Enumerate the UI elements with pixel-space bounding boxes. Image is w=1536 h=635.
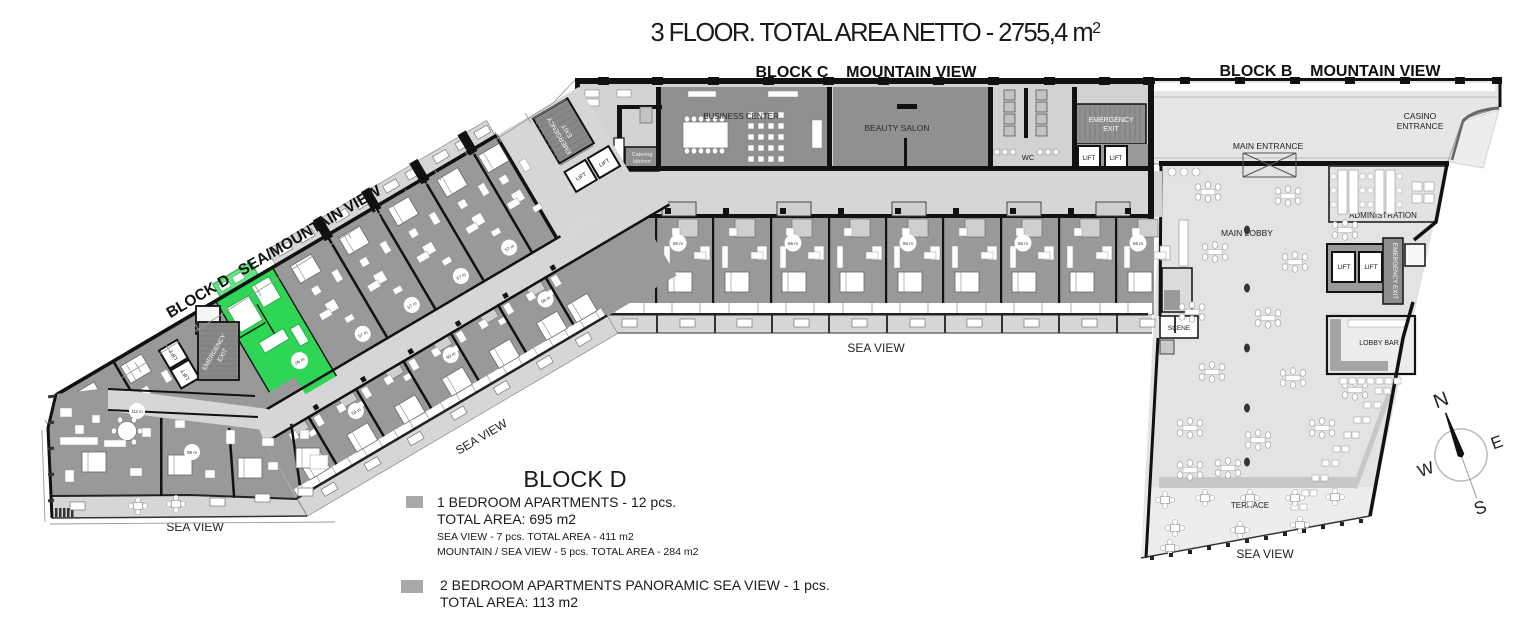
svg-text:LIFT: LIFT <box>1337 264 1350 271</box>
svg-text:66 m: 66 m <box>1018 241 1028 246</box>
svg-text:LIFT: LIFT <box>1364 264 1377 271</box>
svg-text:3 FLOOR. TOTAL AREA NETTO - 27: 3 FLOOR. TOTAL AREA NETTO - 2755,4 m2 <box>651 19 1102 47</box>
svg-text:66 m: 66 m <box>673 241 683 246</box>
svg-text:98 m: 98 m <box>187 450 197 455</box>
svg-text:BUSINESS CENTER: BUSINESS CENTER <box>703 112 779 121</box>
svg-text:EXIT: EXIT <box>1103 126 1119 133</box>
svg-text:SEA VIEW: SEA VIEW <box>166 520 224 534</box>
svg-text:SEA VIEW: SEA VIEW <box>847 341 905 355</box>
svg-text:WC: WC <box>1022 153 1035 162</box>
svg-text:MAIN ENTRANCE: MAIN ENTRANCE <box>1233 141 1304 151</box>
svg-text:Catering: Catering <box>632 152 653 158</box>
svg-text:ENTRANCE: ENTRANCE <box>1397 121 1444 131</box>
svg-text:SEA VIEW: SEA VIEW <box>1236 547 1294 561</box>
svg-text:LOBBY BAR: LOBBY BAR <box>1359 340 1399 347</box>
svg-text:1 BEDROOM APARTMENTS - 12 pcs.: 1 BEDROOM APARTMENTS - 12 pcs. <box>437 494 676 510</box>
svg-text:BEAUTY SALON: BEAUTY SALON <box>864 123 929 133</box>
svg-text:LIFT: LIFT <box>1083 156 1096 162</box>
svg-text:EMERGENCY EXIT: EMERGENCY EXIT <box>1391 243 1398 299</box>
svg-text:SCENE: SCENE <box>1168 325 1191 332</box>
svg-text:MOUNTAIN / SEA VIEW - 5 pcs. T: MOUNTAIN / SEA VIEW - 5 pcs. TOTAL AREA … <box>437 546 699 558</box>
svg-text:TOTAL AREA: 113 m2: TOTAL AREA: 113 m2 <box>440 594 578 610</box>
svg-text:kitchen: kitchen <box>633 159 650 165</box>
svg-text:66 m: 66 m <box>903 241 913 246</box>
svg-text:66 m: 66 m <box>1133 241 1143 246</box>
svg-text:112 m: 112 m <box>131 409 143 414</box>
svg-text:SEA VIEW - 7 pcs. TOTAL AREA -: SEA VIEW - 7 pcs. TOTAL AREA - 411 m2 <box>437 531 634 543</box>
svg-text:CASINO: CASINO <box>1404 111 1437 121</box>
svg-text:EMERGENCY: EMERGENCY <box>1088 117 1133 124</box>
svg-text:LIFT: LIFT <box>1110 156 1123 162</box>
svg-text:TOTAL AREA: 695 m2: TOTAL AREA: 695 m2 <box>437 511 576 527</box>
svg-text:2 BEDROOM APARTMENTS PANORAMIC: 2 BEDROOM APARTMENTS PANORAMIC SEA VIEW … <box>440 577 830 593</box>
svg-text:66 m: 66 m <box>788 241 798 246</box>
svg-text:BLOCK D: BLOCK D <box>523 466 626 492</box>
